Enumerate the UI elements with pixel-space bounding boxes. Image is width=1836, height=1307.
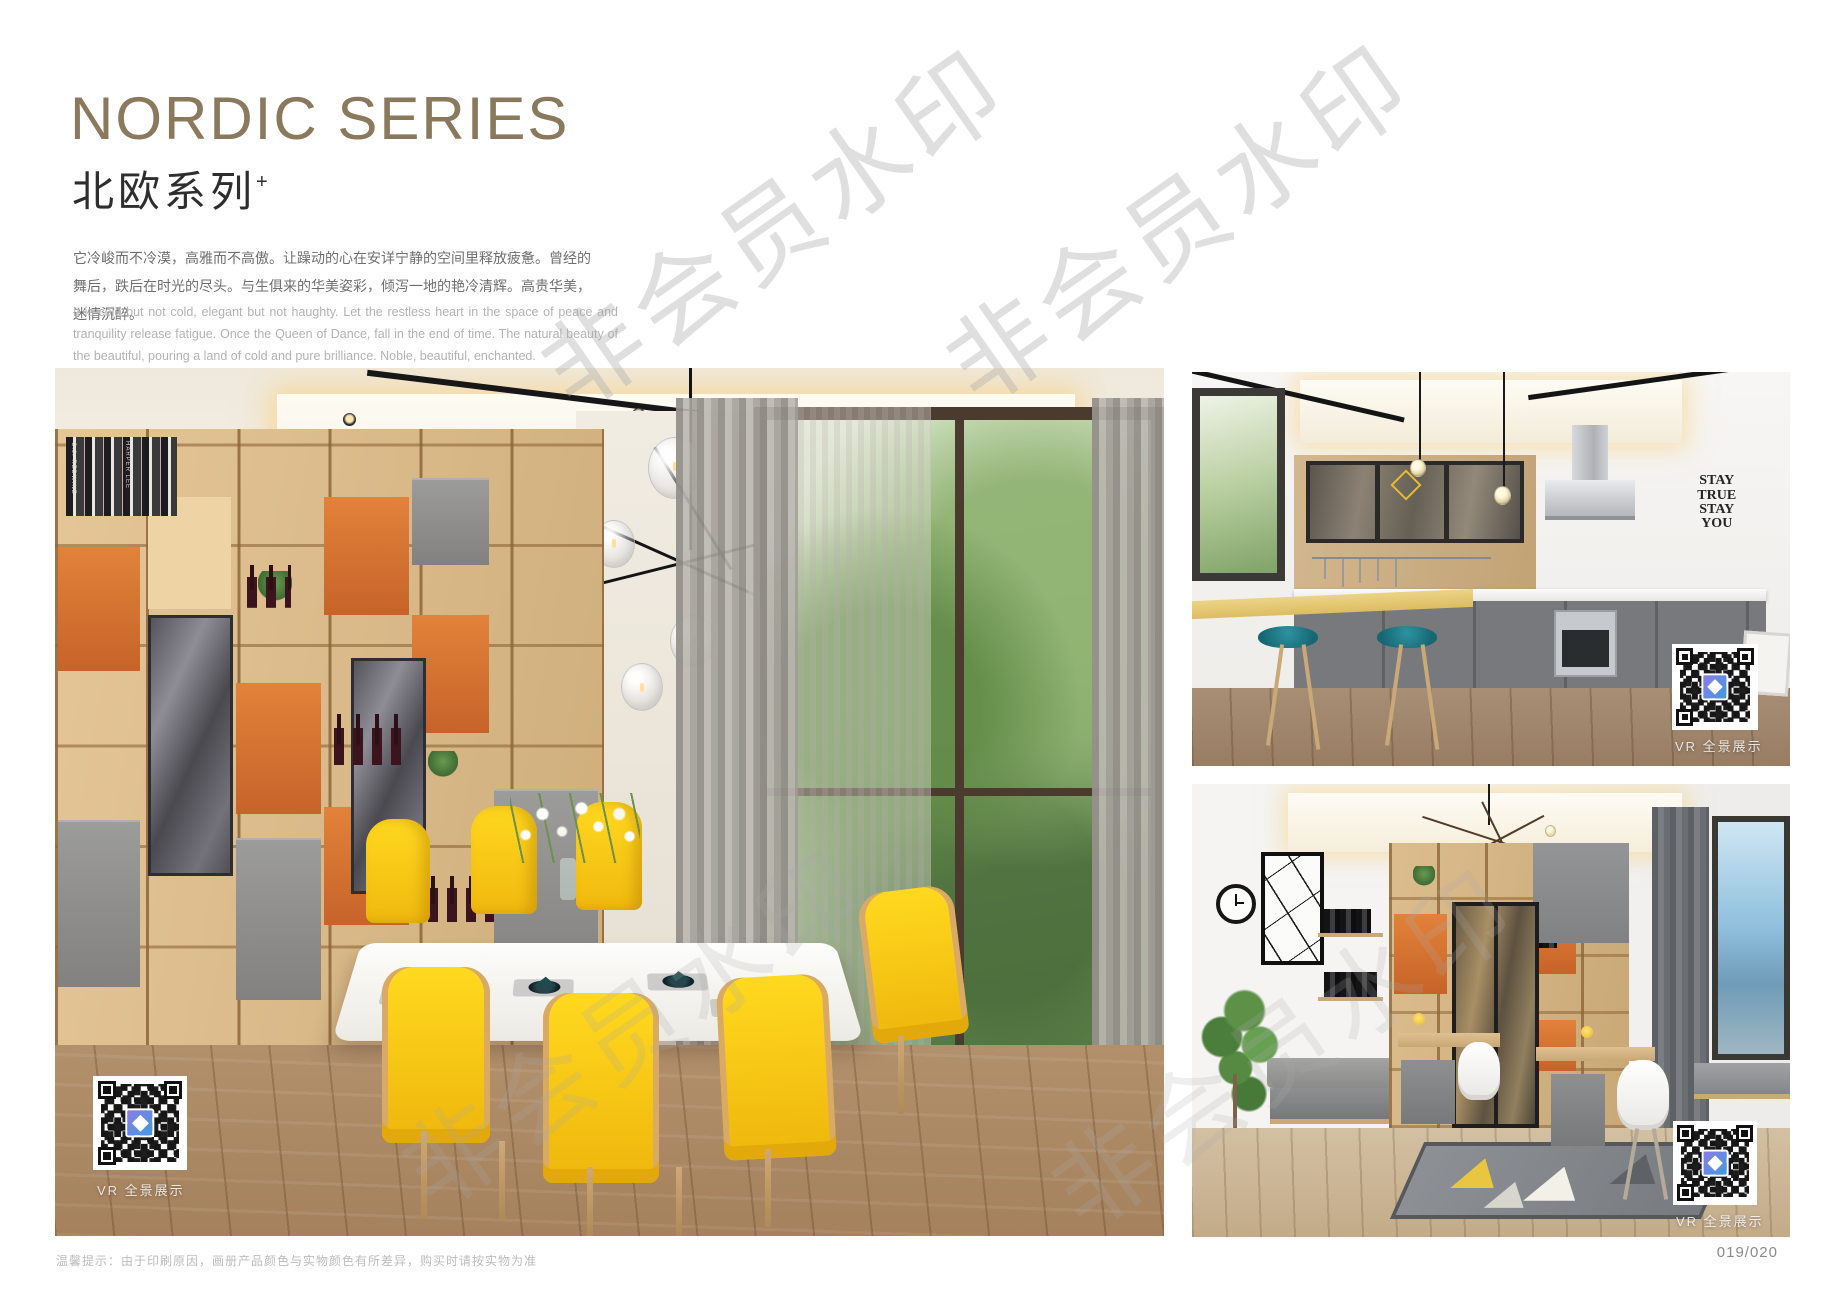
window-seat-cushion — [1694, 1063, 1790, 1100]
hanging-utensil — [1359, 559, 1361, 583]
vr-panorama-label: VR 全景展示 — [1675, 736, 1763, 755]
wall-art-line: STAY — [1697, 503, 1736, 517]
qr-finder — [98, 1147, 117, 1166]
page-number: 019/020 — [1717, 1244, 1778, 1261]
chair-leg — [499, 1141, 505, 1219]
rug-triangle — [1523, 1167, 1590, 1201]
bench-cushion — [1267, 1058, 1399, 1087]
vr-cube-logo-icon — [1702, 1150, 1729, 1177]
potted-plant — [1413, 866, 1435, 886]
glass-vase — [560, 858, 576, 900]
bench-base — [1270, 1088, 1396, 1125]
dining-armchair-yellow — [543, 993, 659, 1183]
chair-leg — [676, 1167, 682, 1236]
book-spine-label: C.J. REDWINE — [70, 442, 76, 495]
pendant-cord — [1419, 372, 1421, 463]
shelf-cell-orange — [58, 547, 140, 671]
subtitle-plus: + — [256, 171, 272, 193]
gray-upper-cabinet — [1533, 843, 1629, 943]
chair-leg — [421, 1132, 427, 1219]
hanging-utensil — [1377, 559, 1379, 581]
shelf-glass-door — [148, 615, 233, 876]
shelf-cell-orange — [1394, 914, 1447, 994]
books — [1324, 972, 1378, 997]
vr-panorama-label: VR 全景展示 — [1676, 1211, 1764, 1230]
vr-cube-logo-icon — [125, 1108, 154, 1137]
white-shell-chair — [1617, 1060, 1669, 1130]
wall-art-text: STAY TRUE STAY YOU — [1697, 474, 1736, 531]
flower-bouquet — [510, 793, 640, 863]
dining-armchair-yellow — [856, 884, 970, 1045]
chair-leg — [587, 1167, 593, 1236]
wall-art-line: TRUE — [1697, 489, 1736, 503]
abstract-art-frame — [1261, 852, 1324, 965]
qr-finder — [98, 1081, 117, 1100]
subtitle-text: 北欧系列 — [72, 168, 256, 215]
qr-finder — [1677, 1184, 1694, 1201]
hanging-utensil — [1324, 559, 1326, 579]
hanging-utensil — [1342, 559, 1344, 587]
shelf-cell-orange — [324, 497, 409, 615]
chandelier-globe — [621, 663, 663, 711]
qr-finder — [1736, 1125, 1753, 1142]
range-hood-chimney — [1572, 425, 1608, 484]
pendant-bulb — [1410, 459, 1426, 477]
footer-disclaimer: 温馨提示：由于印刷原因，画册产品颜色与实物颜色有所差异，购买时请按实物为准 — [56, 1252, 537, 1269]
kitchen-photo: STAY TRUE STAY YOU VR 全景展示 — [1192, 372, 1790, 766]
built-in-oven — [1554, 610, 1617, 677]
shelf-gray-door — [412, 478, 489, 565]
shelf-gray-door — [58, 820, 140, 988]
vr-panorama-label: VR 全景展示 — [97, 1180, 185, 1199]
qr-finder — [1737, 648, 1754, 665]
qr-code — [1673, 1121, 1757, 1205]
chandelier-bulb — [1545, 825, 1556, 837]
wall-art-line: STAY — [1697, 474, 1736, 488]
wine-bottles — [242, 565, 291, 621]
wall-art-line: YOU — [1697, 517, 1736, 531]
qr-finder — [1676, 648, 1693, 665]
qr-finder — [164, 1081, 183, 1100]
rug-triangle — [1450, 1158, 1507, 1188]
qr-finder — [1676, 709, 1693, 726]
qr-finder — [1677, 1125, 1694, 1142]
wine-bottles — [329, 714, 406, 782]
cabinet-mullion — [1444, 465, 1449, 540]
shelf-gray-door — [236, 838, 321, 999]
pendant-cord — [1503, 372, 1505, 490]
range-hood — [1545, 480, 1635, 519]
book-spine-label: HARPER LEE — [124, 441, 130, 489]
place-setting — [648, 974, 709, 991]
dining-chair-yellow — [366, 819, 430, 923]
wall-shelf — [1318, 933, 1384, 937]
description-english: It is cold but not cold, elegant but not… — [73, 301, 618, 367]
dining-armchair-yellow — [382, 967, 490, 1143]
desk-drawer — [1401, 1060, 1455, 1123]
potted-plant — [428, 751, 458, 777]
shelf-cell-orange — [1533, 1020, 1576, 1071]
chair-leg — [898, 1036, 904, 1114]
desk-drawer — [1551, 1074, 1605, 1146]
bar-stool-teal — [1258, 626, 1318, 648]
qr-code — [1672, 644, 1758, 730]
qr-code — [93, 1076, 187, 1170]
catalog-page: NORDIC SERIES 北欧系列+ 它冷峻而不冷漠，高雅而不高傲。让躁动的心… — [0, 0, 1836, 1307]
hanging-utensil — [1395, 559, 1397, 587]
dining-room-photo: C.J. REDWINE HARPER LEE — [55, 368, 1164, 1236]
white-desk-chair — [1458, 1042, 1500, 1100]
wall-shelf — [1318, 997, 1384, 1001]
desk-lamp-yellow — [1413, 1013, 1425, 1025]
cabinet-mullion — [1375, 465, 1380, 540]
chair-leg — [765, 1149, 771, 1227]
vr-cube-logo-icon — [1701, 673, 1728, 700]
utensil-rail — [1312, 557, 1491, 559]
study-room-photo: VR 全景展示 — [1192, 784, 1790, 1237]
page-subtitle-cn: 北欧系列+ — [72, 158, 272, 219]
sea-view-window — [1712, 816, 1790, 1061]
wall-clock — [1216, 884, 1256, 924]
shelf-cell-orange — [236, 683, 321, 813]
dining-armchair-yellow — [716, 973, 837, 1161]
page-title: NORDIC SERIES — [70, 84, 569, 153]
curtain-right — [1092, 398, 1164, 1066]
desk-lamp-yellow — [1581, 1026, 1593, 1038]
book-row: C.J. REDWINE HARPER LEE — [66, 437, 177, 515]
books — [1324, 909, 1372, 934]
kitchen-window — [1192, 388, 1285, 581]
bar-stool-teal — [1377, 626, 1437, 648]
desk — [1536, 1047, 1656, 1061]
